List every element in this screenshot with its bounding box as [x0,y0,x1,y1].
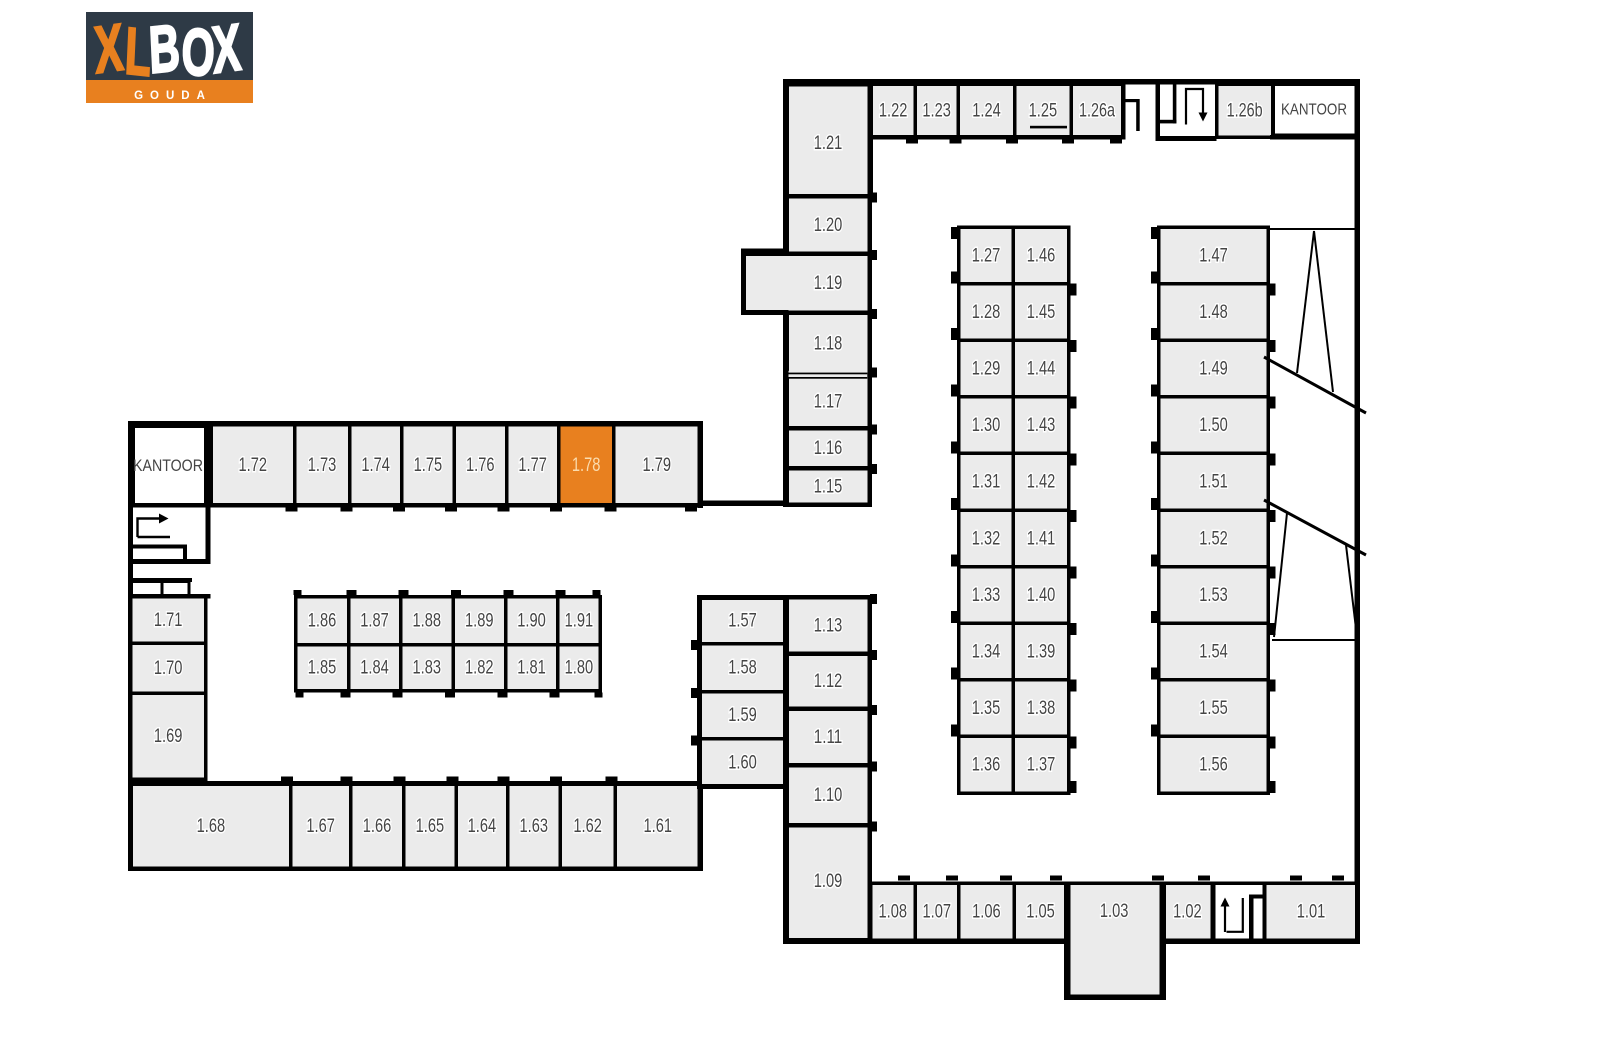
svg-text:1.88: 1.88 [413,610,442,632]
svg-text:1.07: 1.07 [923,901,952,923]
svg-text:KANTOOR: KANTOOR [133,457,203,475]
svg-text:1.51: 1.51 [1199,471,1228,493]
svg-text:1.75: 1.75 [414,454,443,476]
svg-text:1.06: 1.06 [972,901,1001,923]
svg-text:1.20: 1.20 [814,214,843,236]
svg-text:1.73: 1.73 [308,454,337,476]
svg-text:1.21: 1.21 [814,132,843,154]
svg-text:1.10: 1.10 [814,784,843,806]
svg-text:1.02: 1.02 [1173,901,1202,923]
svg-text:1.68: 1.68 [197,815,226,837]
svg-text:1.52: 1.52 [1199,527,1228,549]
svg-text:1.18: 1.18 [814,333,843,355]
svg-text:1.25: 1.25 [1029,100,1058,122]
svg-text:1.54: 1.54 [1199,640,1228,662]
svg-text:1.63: 1.63 [520,815,549,837]
svg-text:1.30: 1.30 [972,414,1001,436]
svg-text:1.74: 1.74 [361,454,390,476]
svg-text:1.78: 1.78 [572,454,601,476]
svg-text:1.08: 1.08 [879,901,908,923]
svg-text:1.55: 1.55 [1199,697,1228,719]
svg-text:1.67: 1.67 [306,815,335,837]
svg-text:1.60: 1.60 [728,752,757,774]
svg-text:1.03: 1.03 [1100,900,1129,922]
svg-text:1.80: 1.80 [565,657,594,679]
svg-text:1.53: 1.53 [1199,584,1228,606]
svg-text:1.81: 1.81 [517,657,546,679]
svg-text:KANTOOR: KANTOOR [1281,102,1347,119]
svg-text:1.39: 1.39 [1027,640,1056,662]
svg-text:1.34: 1.34 [972,640,1001,662]
svg-text:1.89: 1.89 [465,610,494,632]
svg-text:1.37: 1.37 [1027,754,1056,776]
svg-text:1.29: 1.29 [972,357,1001,379]
svg-text:1.58: 1.58 [728,657,757,679]
svg-text:1.40: 1.40 [1027,584,1056,606]
svg-text:1.05: 1.05 [1026,901,1055,923]
svg-text:1.16: 1.16 [814,437,843,459]
svg-text:1.82: 1.82 [465,657,494,679]
svg-text:1.70: 1.70 [154,657,183,679]
svg-text:1.65: 1.65 [416,815,445,837]
svg-text:1.32: 1.32 [972,527,1001,549]
svg-text:1.38: 1.38 [1027,697,1056,719]
svg-text:1.79: 1.79 [643,454,672,476]
svg-text:1.12: 1.12 [814,670,843,692]
svg-text:1.36: 1.36 [972,754,1001,776]
svg-text:1.76: 1.76 [466,454,495,476]
svg-text:1.35: 1.35 [972,697,1001,719]
svg-text:1.46: 1.46 [1027,244,1056,266]
svg-text:1.31: 1.31 [972,471,1001,493]
svg-text:1.24: 1.24 [972,100,1001,122]
svg-text:1.27: 1.27 [972,244,1001,266]
svg-text:1.41: 1.41 [1027,527,1056,549]
svg-text:1.50: 1.50 [1199,414,1228,436]
svg-text:GOUDA: GOUDA [134,90,212,102]
svg-text:1.11: 1.11 [814,726,843,748]
svg-text:1.71: 1.71 [154,609,183,631]
svg-text:1.42: 1.42 [1027,471,1056,493]
svg-text:1.15: 1.15 [814,475,843,497]
svg-text:1.09: 1.09 [814,870,843,892]
svg-text:1.23: 1.23 [922,100,951,122]
svg-text:1.17: 1.17 [814,390,843,412]
svg-text:1.47: 1.47 [1199,244,1228,266]
svg-text:1.85: 1.85 [308,657,337,679]
svg-text:1.61: 1.61 [644,815,673,837]
svg-text:1.83: 1.83 [413,657,442,679]
svg-text:1.66: 1.66 [363,815,392,837]
svg-text:XLBOX: XLBOX [91,11,243,90]
svg-text:1.28: 1.28 [972,301,1001,323]
svg-text:1.62: 1.62 [573,815,602,837]
svg-text:1.84: 1.84 [360,657,389,679]
svg-text:1.86: 1.86 [308,610,337,632]
svg-text:1.13: 1.13 [814,614,843,636]
svg-text:1.45: 1.45 [1027,301,1056,323]
svg-text:1.90: 1.90 [517,610,546,632]
svg-text:1.64: 1.64 [468,815,497,837]
svg-text:1.59: 1.59 [728,704,757,726]
svg-text:1.01: 1.01 [1297,901,1326,923]
svg-text:1.72: 1.72 [239,454,268,476]
svg-text:1.77: 1.77 [518,454,547,476]
svg-text:1.26a: 1.26a [1079,100,1115,122]
svg-text:1.49: 1.49 [1199,357,1228,379]
svg-text:1.56: 1.56 [1199,754,1228,776]
svg-text:1.91: 1.91 [565,610,594,632]
svg-text:1.57: 1.57 [728,610,757,632]
svg-text:1.22: 1.22 [879,100,908,122]
svg-text:1.26b: 1.26b [1227,100,1263,122]
svg-text:1.43: 1.43 [1027,414,1056,436]
svg-text:1.19: 1.19 [814,272,843,294]
svg-text:1.69: 1.69 [154,725,183,747]
svg-text:1.33: 1.33 [972,584,1001,606]
svg-text:1.87: 1.87 [360,610,389,632]
svg-text:1.44: 1.44 [1027,357,1056,379]
svg-text:1.48: 1.48 [1199,301,1228,323]
